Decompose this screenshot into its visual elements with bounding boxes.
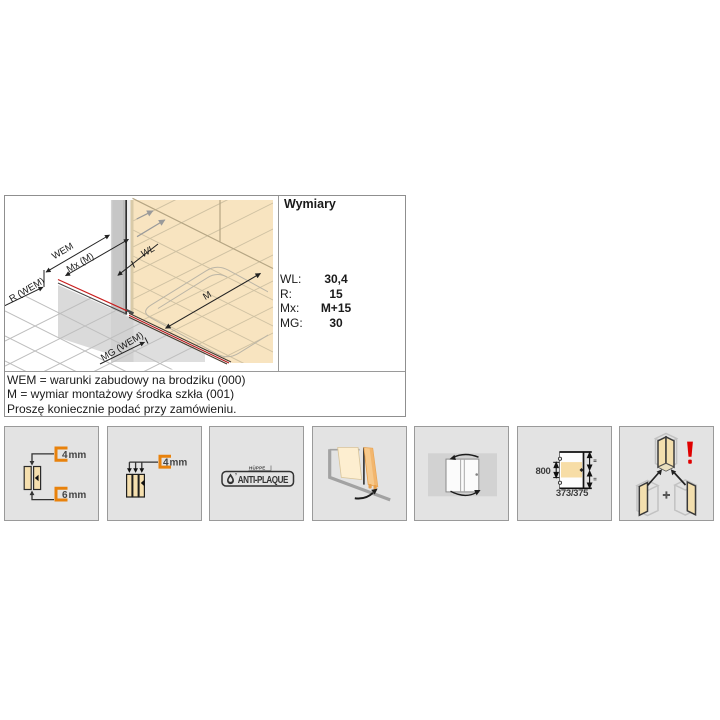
- svg-text:mm: mm: [69, 450, 87, 461]
- svg-text:HÜPPE: HÜPPE: [249, 465, 266, 471]
- svg-text:800: 800: [536, 466, 551, 477]
- svg-text:mm: mm: [170, 458, 188, 469]
- svg-text:R (WEM): R (WEM): [7, 276, 46, 305]
- svg-text:373/375: 373/375: [556, 488, 589, 499]
- svg-text:’: ’: [235, 473, 237, 480]
- svg-text:6: 6: [62, 490, 68, 501]
- svg-text:mm: mm: [69, 490, 87, 501]
- svg-text:Mx (M): Mx (M): [65, 251, 96, 275]
- svg-text:WEM: WEM: [50, 241, 76, 262]
- svg-text:4: 4: [163, 458, 169, 469]
- svg-text:ANTI-PLAQUE: ANTI-PLAQUE: [238, 474, 288, 485]
- svg-text:4: 4: [62, 450, 68, 461]
